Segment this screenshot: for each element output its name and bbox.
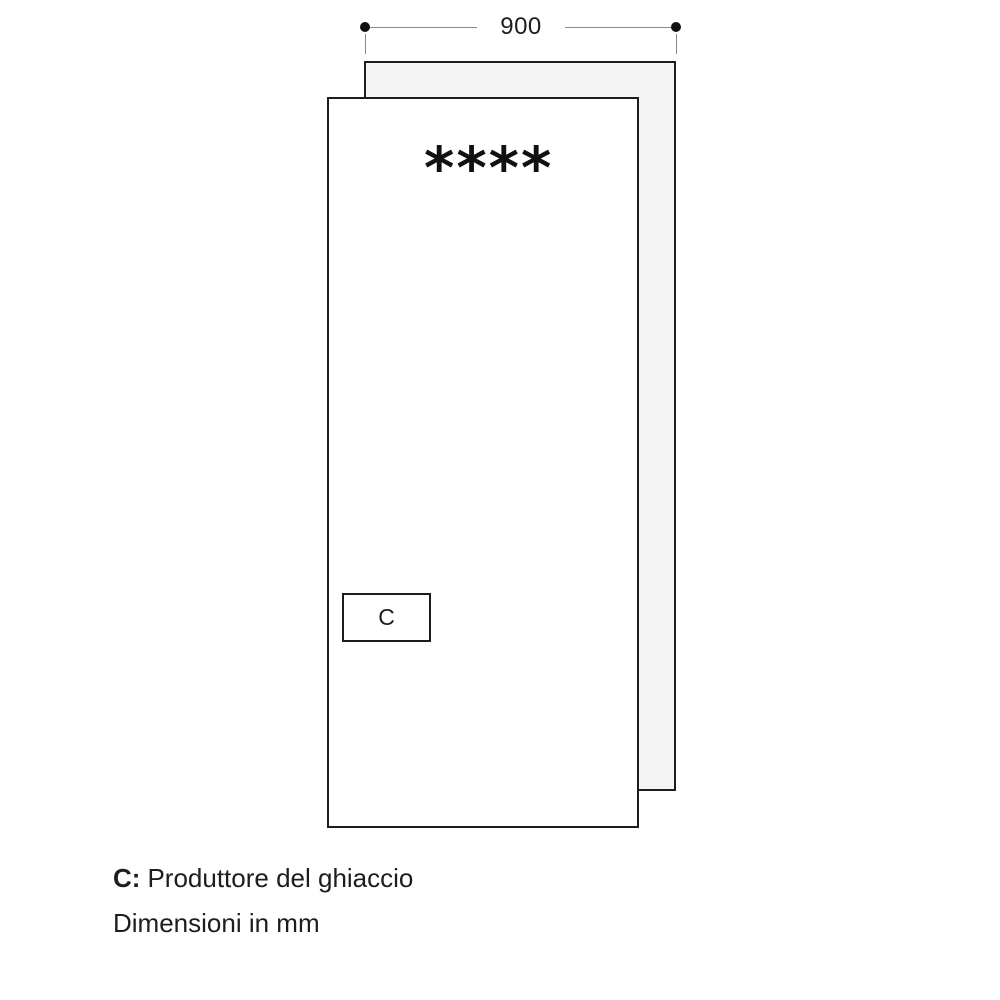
dimension-endpoint-right-dot	[671, 22, 681, 32]
appliance-dimension-diagram: 900 **** C C:Produttore del ghiaccio Dim…	[0, 0, 1000, 1000]
ice-maker-box: C	[342, 593, 431, 642]
legend-line: C:Produttore del ghiaccio	[113, 863, 413, 893]
door-front-panel: **** C	[327, 97, 639, 828]
extension-line-left	[365, 34, 366, 54]
dimension-width-value: 900	[477, 13, 565, 41]
four-star-freezer-rating: ****	[424, 139, 553, 197]
extension-line-right	[676, 34, 677, 54]
dimension-endpoint-left-dot	[360, 22, 370, 32]
ice-maker-box-label: C	[378, 606, 395, 629]
legend-key: C:	[113, 863, 140, 893]
units-note: Dimensioni in mm	[113, 908, 320, 938]
legend-definition: Produttore del ghiaccio	[147, 863, 413, 893]
